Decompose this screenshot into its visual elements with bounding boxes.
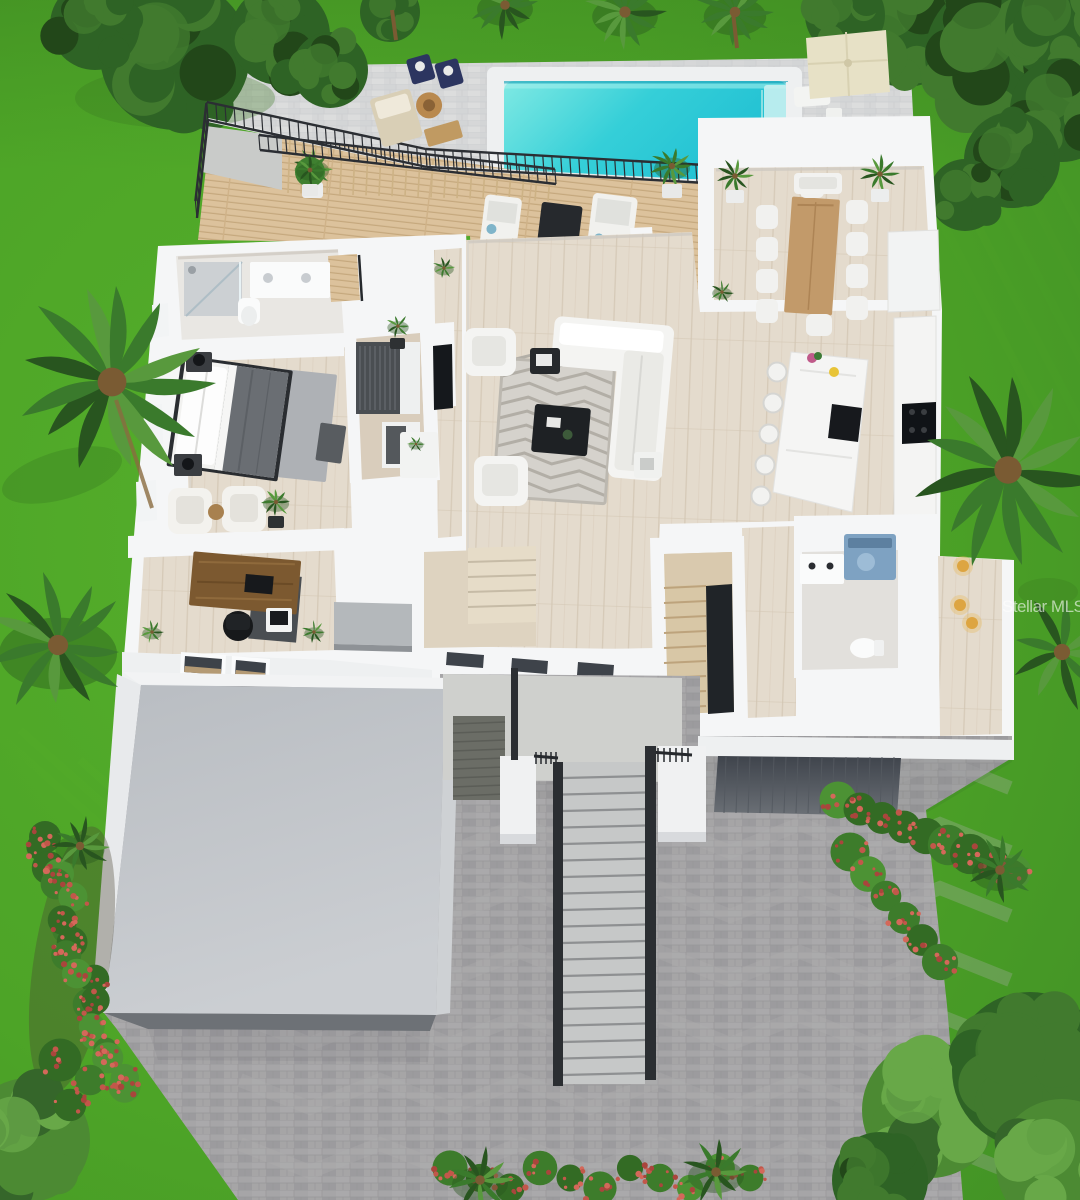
svg-text:Stellar MLS: Stellar MLS <box>1002 597 1080 616</box>
